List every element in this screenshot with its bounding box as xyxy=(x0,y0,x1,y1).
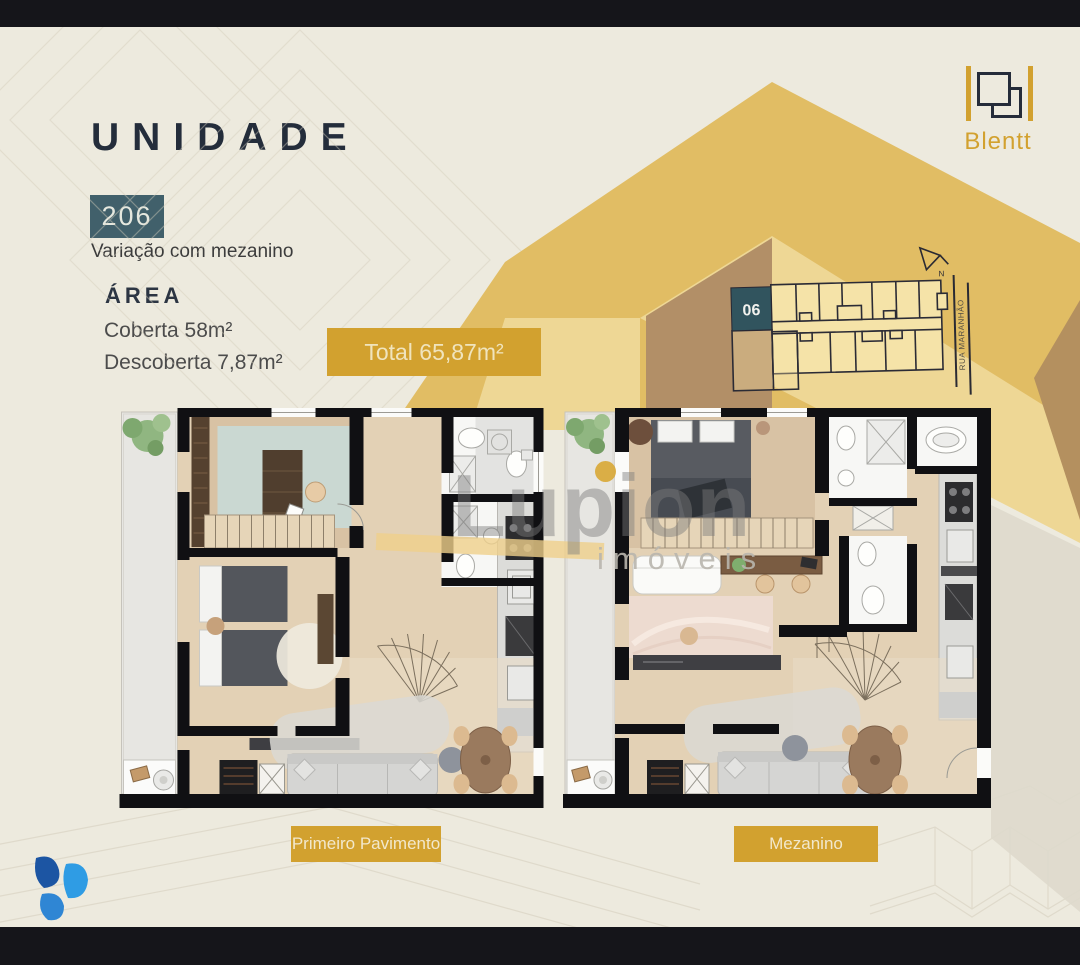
lupion-logo-petal-mid xyxy=(40,893,64,920)
blentt-logo-bar-left xyxy=(966,66,971,121)
blentt-brand-name: Blentt xyxy=(930,128,1066,156)
terrace xyxy=(122,412,178,794)
label-mezanino: Mezanino xyxy=(734,826,878,862)
lupion-logo-petal-light xyxy=(63,863,88,898)
floorplan-primeiro-pavimento[interactable] xyxy=(115,408,548,808)
lupion-logo-petal-dark xyxy=(35,857,59,889)
label-primeiro-pavimento: Primeiro Pavimento xyxy=(291,826,441,862)
north-label: N xyxy=(938,269,944,278)
keyplan-highlighted-unit[interactable]: 06 xyxy=(731,287,772,331)
label-primeiro-pavimento-text: Primeiro Pavimento xyxy=(292,834,440,854)
blentt-logo-square-front xyxy=(977,72,1011,106)
label-mezanino-text: Mezanino xyxy=(769,834,843,854)
page: 06 N RUA MARANHÃO UNIDADE 206 Variação c… xyxy=(0,0,1080,965)
stairs xyxy=(205,515,335,548)
total-area-value: Total 65,87m² xyxy=(364,339,503,366)
blentt-logo-bar-right xyxy=(1028,66,1033,121)
street-name: RUA MARANHÃO xyxy=(956,299,967,370)
terrace xyxy=(565,412,615,794)
blentt-logo: Blentt xyxy=(930,60,1060,160)
keyplan-unit-label: 06 xyxy=(742,302,760,319)
lupion-logo xyxy=(28,848,98,923)
total-area-badge: Total 65,87m² xyxy=(327,328,541,376)
top-letterbox-bar xyxy=(0,0,1080,27)
stairs xyxy=(641,518,813,548)
bottom-letterbox-bar xyxy=(0,927,1080,965)
floorplan-mezanino[interactable] xyxy=(563,408,991,808)
